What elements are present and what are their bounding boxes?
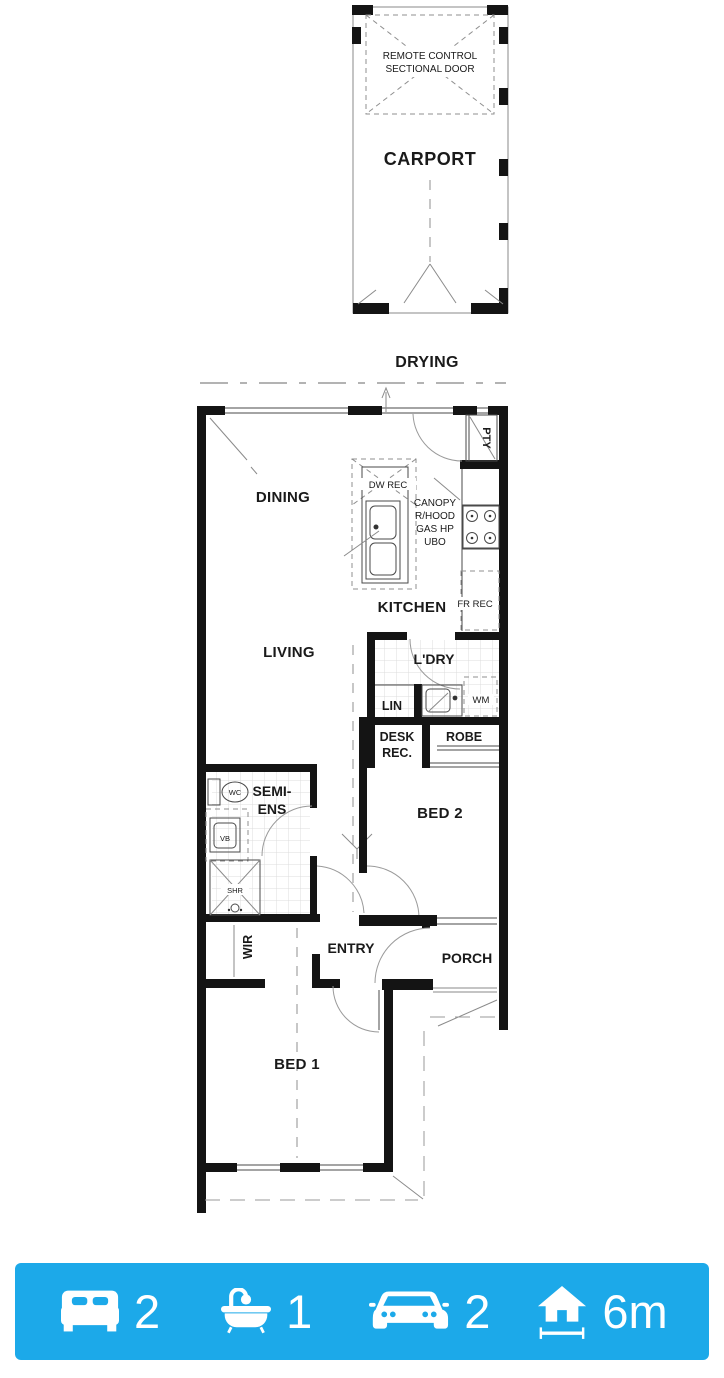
wc-label: WC xyxy=(229,788,242,797)
bathrooms-item: 1 xyxy=(221,1288,312,1335)
kitchen-label: KITCHEN xyxy=(378,599,447,616)
carspaces-item: 2 xyxy=(369,1288,490,1335)
bed1-label: BED 1 xyxy=(274,1056,320,1073)
entry-label: ENTRY xyxy=(328,940,376,956)
dining-label: DINING xyxy=(256,489,310,506)
living-label: LIVING xyxy=(263,644,315,661)
summary-bar: 2 1 2 6m xyxy=(15,1263,709,1360)
desk-rec-label-1: DESK xyxy=(380,730,415,744)
canopy-label-4: UBO xyxy=(424,537,446,548)
laundry-label: L'DRY xyxy=(414,651,456,667)
carport: REMOTE CONTROL SECTIONAL DOOR CARPORT xyxy=(352,5,508,314)
robe-label: ROBE xyxy=(446,730,482,744)
kitchen-zone: PTY DW REC CANOPY R/HOO xyxy=(344,414,508,631)
ceiling-junction xyxy=(342,834,372,859)
pantry-label: PTY xyxy=(480,427,492,449)
bedrooms-count: 2 xyxy=(134,1288,160,1335)
porch-label: PORCH xyxy=(442,950,493,966)
wir-label: WIR xyxy=(241,935,255,959)
canopy-label-2: R/HOOD xyxy=(415,511,455,522)
remote-door-label-line2: SECTIONAL DOOR xyxy=(385,64,474,75)
bed-icon xyxy=(61,1288,119,1335)
cooktop xyxy=(463,506,499,548)
canopy-label-1: CANOPY xyxy=(414,498,457,509)
shr-label: SHR xyxy=(227,886,243,895)
desk-rec-label-2: REC. xyxy=(382,746,412,760)
frontage-item: 6m xyxy=(537,1285,667,1339)
carspaces-count: 2 xyxy=(464,1288,490,1335)
bathrooms-count: 1 xyxy=(286,1288,312,1335)
island-bench xyxy=(344,459,416,589)
walk-in-robe xyxy=(205,925,340,988)
carport-centre-marks xyxy=(358,180,503,304)
linen-label: LIN xyxy=(382,699,402,713)
frontage-value: 6m xyxy=(602,1288,667,1335)
canopy-label-3: GAS HP xyxy=(416,524,454,535)
remote-door-label-line1: REMOTE CONTROL xyxy=(383,51,478,62)
floor-plan: REMOTE CONTROL SECTIONAL DOOR CARPORT DR… xyxy=(0,0,724,1260)
carport-label: CARPORT xyxy=(384,149,477,169)
car-icon xyxy=(369,1289,449,1334)
wm-label: WM xyxy=(473,695,490,706)
entry-zone xyxy=(333,916,497,1032)
dw-rec-label: DW REC xyxy=(369,480,408,491)
bed2-label: BED 2 xyxy=(417,805,463,822)
vb-label: VB xyxy=(220,834,230,843)
bedrooms-item: 2 xyxy=(61,1288,160,1335)
fr-rec-label: FR REC xyxy=(457,599,493,610)
roof-outline xyxy=(205,1017,498,1200)
bath-icon xyxy=(221,1288,271,1335)
semi-ens-label-1: SEMI- xyxy=(253,783,292,799)
house-width-icon xyxy=(537,1285,587,1339)
semi-ens-label-2: ENS xyxy=(258,801,287,817)
drying-label: DRYING xyxy=(395,354,458,371)
